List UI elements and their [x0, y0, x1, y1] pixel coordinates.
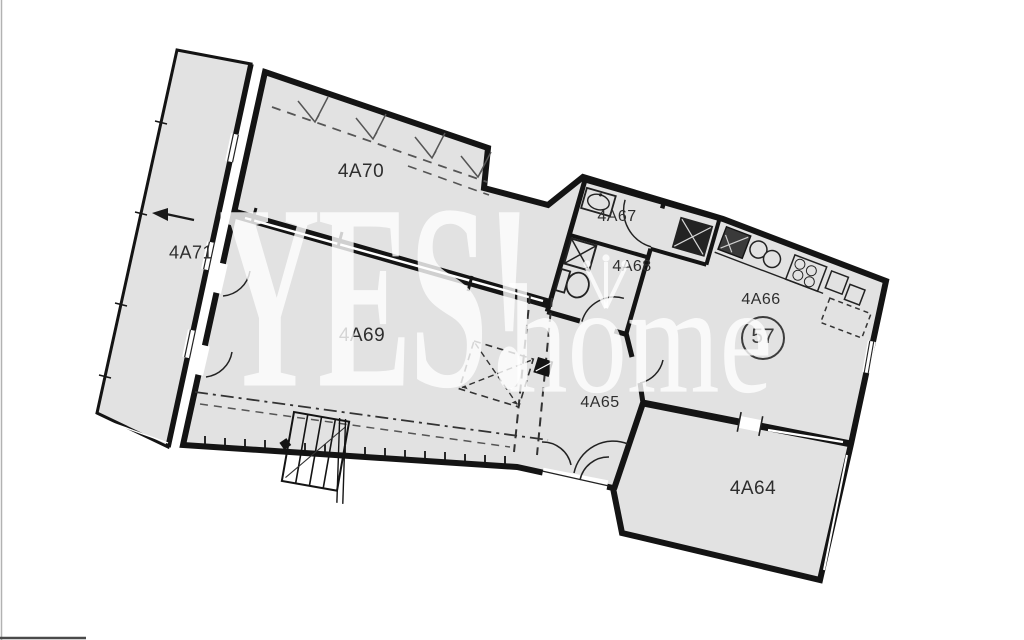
room-label-4a64: 4A64: [730, 478, 776, 500]
room-label-4a68: 4A68: [612, 258, 651, 276]
room-label-4a69: 4A69: [339, 325, 385, 347]
room-label-4a67: 4A67: [597, 208, 636, 226]
room-label-4a71: 4A71: [169, 243, 213, 264]
floor-plan-canvas: [0, 0, 1024, 640]
room-label-4a70: 4A70: [338, 161, 384, 183]
room-label-4a66: 4A66: [741, 291, 780, 309]
unit-number-badge: 57: [741, 316, 785, 360]
floor-plan-page: 4A70 4A71 4A69 4A67 4A68 4A66 4A65 4A64 …: [0, 0, 1024, 640]
room-label-4a65: 4A65: [580, 394, 619, 412]
